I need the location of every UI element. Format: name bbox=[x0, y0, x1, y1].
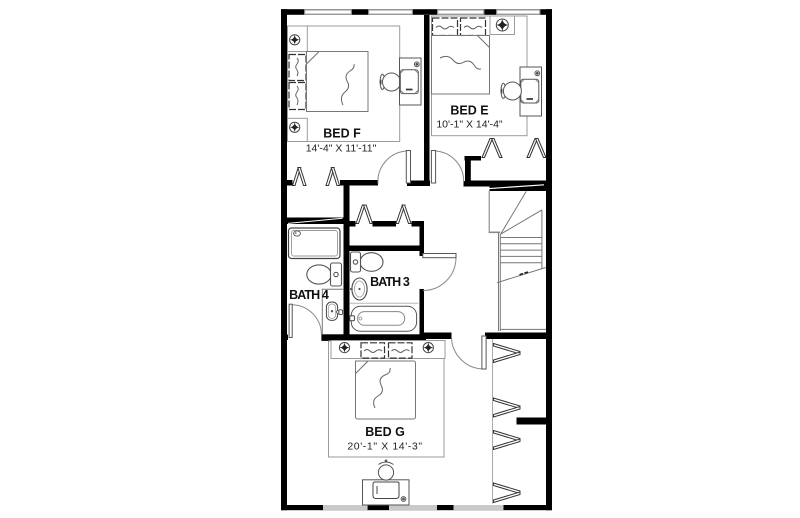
svg-text:14'-4" X 11'-11": 14'-4" X 11'-11" bbox=[306, 143, 377, 155]
svg-text:BATH 3: BATH 3 bbox=[370, 275, 410, 289]
svg-text:10'-1" X 14'-4": 10'-1" X 14'-4" bbox=[436, 119, 503, 131]
svg-text:20'-1" X 14'-3": 20'-1" X 14'-3" bbox=[347, 441, 422, 453]
svg-text:BATH 4: BATH 4 bbox=[289, 288, 329, 302]
svg-text:BED F: BED F bbox=[323, 127, 361, 141]
svg-text:BED G: BED G bbox=[365, 425, 405, 439]
svg-text:BED E: BED E bbox=[450, 104, 488, 118]
